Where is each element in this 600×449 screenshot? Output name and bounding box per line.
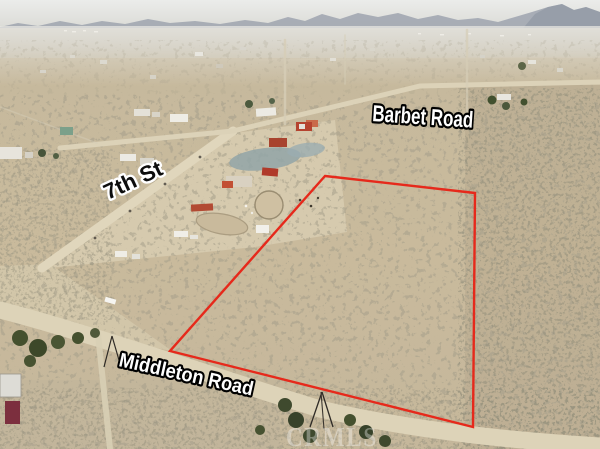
desert-brush-texture [0, 40, 600, 449]
crmls-watermark: CRMLS [286, 422, 378, 449]
aerial-photo: Barbet Road 7th St Middleton Road CRMLS [0, 0, 600, 449]
aerial-photo-canvas: Barbet Road 7th St Middleton Road CRMLS [0, 0, 600, 449]
